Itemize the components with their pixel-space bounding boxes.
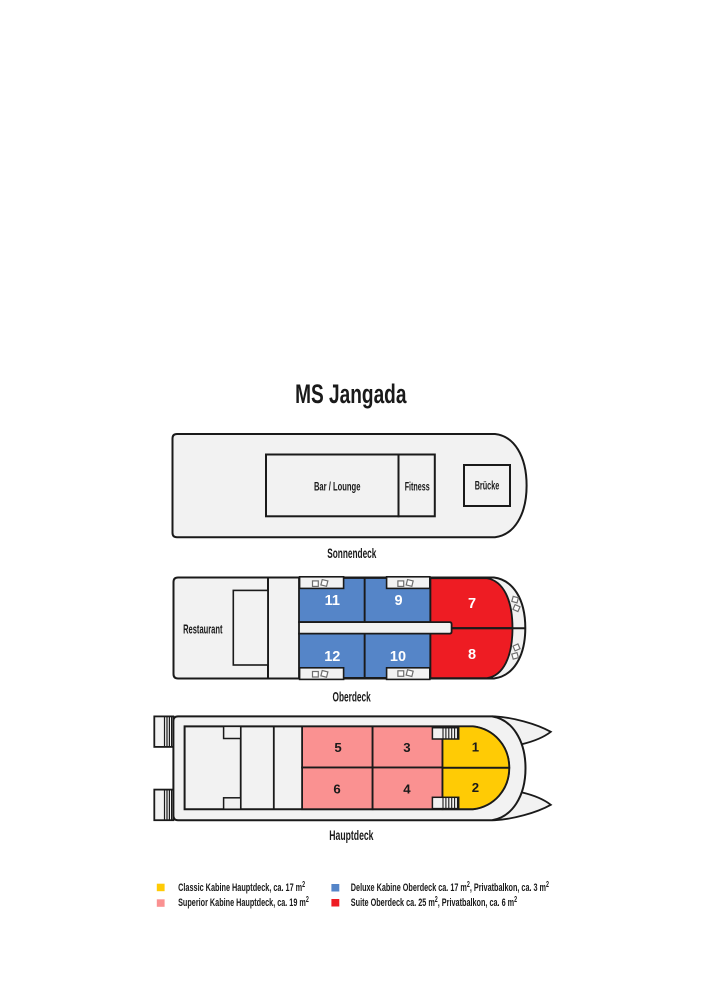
svg-text:7: 7: [468, 596, 476, 612]
svg-text:Restaurant: Restaurant: [183, 622, 223, 636]
svg-text:Superior Kabine Hauptdeck, ca.: Superior Kabine Hauptdeck, ca. 19 m2: [178, 896, 309, 908]
svg-text:6: 6: [333, 782, 340, 797]
svg-text:Oberdeck: Oberdeck: [333, 689, 371, 704]
svg-text:Bar / Lounge: Bar / Lounge: [314, 480, 361, 494]
svg-text:9: 9: [394, 593, 402, 609]
svg-text:Sonnendeck: Sonnendeck: [327, 546, 376, 561]
svg-text:Classic Kabine Hauptdeck, ca.: Classic Kabine Hauptdeck, ca. 17 m2: [178, 881, 305, 893]
svg-text:Hauptdeck: Hauptdeck: [329, 828, 373, 843]
svg-text:Fitness: Fitness: [405, 480, 430, 494]
svg-text:5: 5: [334, 740, 341, 755]
svg-text:Deluxe Kabine Oberdeck ca. 17: Deluxe Kabine Oberdeck ca. 17 m2, Privat…: [351, 881, 549, 893]
svg-text:3: 3: [403, 740, 410, 755]
svg-text:Brücke: Brücke: [475, 479, 500, 493]
svg-text:11: 11: [325, 593, 340, 609]
svg-text:4: 4: [403, 782, 411, 797]
svg-text:Suite Oberdeck ca. 25 m2, Priv: Suite Oberdeck ca. 25 m2, Privatbalkon, …: [351, 896, 518, 908]
svg-text:MS Jangada: MS Jangada: [295, 379, 406, 409]
svg-text:12: 12: [324, 649, 340, 665]
svg-text:10: 10: [390, 649, 406, 665]
svg-text:8: 8: [468, 647, 476, 663]
svg-text:1: 1: [472, 740, 479, 755]
svg-text:2: 2: [472, 780, 479, 795]
